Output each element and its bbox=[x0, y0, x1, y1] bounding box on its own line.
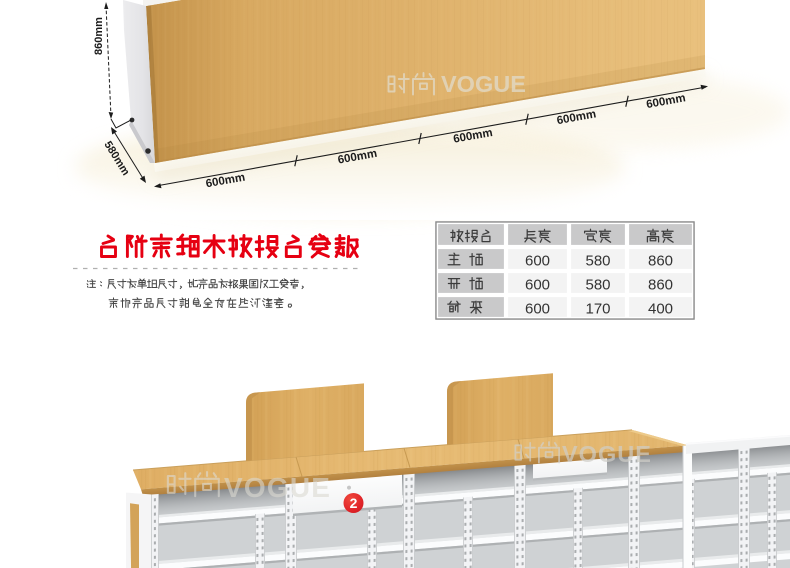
svg-text:600: 600 bbox=[525, 253, 550, 270]
svg-text:2: 2 bbox=[350, 495, 358, 511]
svg-text:VOGUE: VOGUE bbox=[224, 472, 331, 503]
svg-text:860mm: 860mm bbox=[93, 17, 105, 55]
svg-text:VOGUE: VOGUE bbox=[562, 441, 652, 467]
svg-text:860: 860 bbox=[648, 277, 673, 294]
svg-text:580: 580 bbox=[585, 253, 610, 270]
svg-text:580: 580 bbox=[585, 277, 610, 294]
svg-text:VOGUE: VOGUE bbox=[441, 71, 526, 97]
svg-text:600: 600 bbox=[525, 301, 550, 318]
svg-text:400: 400 bbox=[648, 301, 673, 318]
svg-text:170: 170 bbox=[585, 301, 610, 318]
svg-text:600: 600 bbox=[525, 277, 550, 294]
svg-text:860: 860 bbox=[648, 253, 673, 270]
